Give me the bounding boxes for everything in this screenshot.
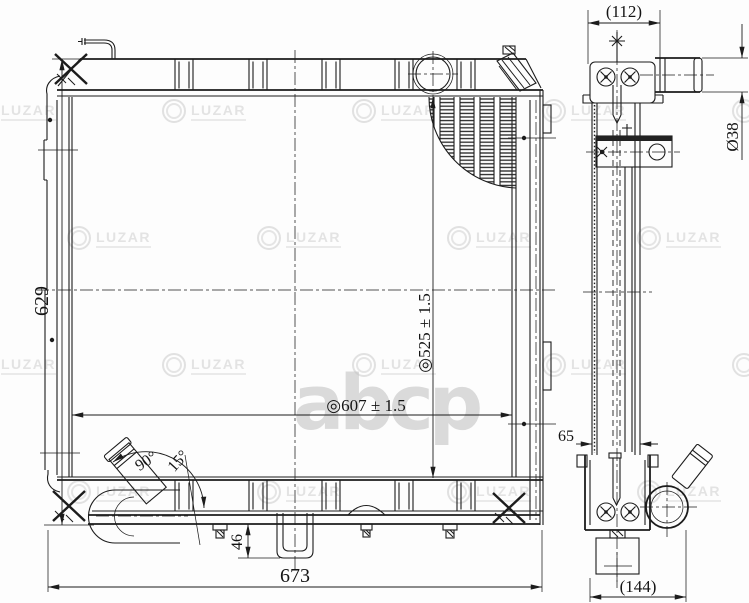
bottom-tank xyxy=(57,477,543,558)
top-stud xyxy=(609,32,625,62)
dim-core-height: ◎525 ± 1.5 xyxy=(415,293,434,372)
side-outlet-pipe xyxy=(640,444,713,537)
bracket-bolt xyxy=(597,68,615,86)
dim-overall-height: 629 xyxy=(31,286,53,316)
front-view xyxy=(36,38,556,570)
side-view xyxy=(577,30,714,588)
side-mount-bracket xyxy=(586,136,680,167)
drawing-svg: 629 673 ◎607 ± 1.5 ◎525 ± 1.5 46 90° 15°… xyxy=(0,0,749,603)
rivet xyxy=(48,118,52,122)
side-bottom-tank xyxy=(577,453,658,582)
left-side-channel xyxy=(38,76,80,492)
dim-core-depth: 65 xyxy=(558,428,574,445)
dim-top-depth: (112) xyxy=(606,2,642,21)
core-fins-hatch xyxy=(429,97,516,188)
inlet-pipe xyxy=(640,58,714,92)
outlet-dome xyxy=(348,506,385,538)
dim-mount-width: ◎607 ± 1.5 xyxy=(326,396,405,415)
dim-overall-width: 673 xyxy=(280,565,310,587)
dim-inlet-pipe-diameter: Ø38 xyxy=(723,122,742,151)
inlet-tank-bracket xyxy=(583,62,663,103)
tank-bolt xyxy=(597,503,615,521)
dim-bottom-depth: (144) xyxy=(620,577,657,596)
dim-drain-bracket: 46 xyxy=(229,534,246,550)
mount-bolt xyxy=(443,524,457,538)
bottom-right-corner-weld xyxy=(493,493,525,524)
mount-bolt xyxy=(213,524,227,538)
outlet-pipe xyxy=(104,437,168,505)
bottom-left-corner-weld xyxy=(53,491,85,522)
top-tank xyxy=(57,46,543,97)
top-right-mount-bracket xyxy=(497,46,536,91)
rivet xyxy=(50,338,54,342)
radiator-technical-drawing: LUZAR LUZAR LUZAR LUZAR LUZAR LUZAR LUZA… xyxy=(0,0,749,603)
tank-bolt xyxy=(621,503,639,521)
bracket-bolt xyxy=(621,68,639,86)
